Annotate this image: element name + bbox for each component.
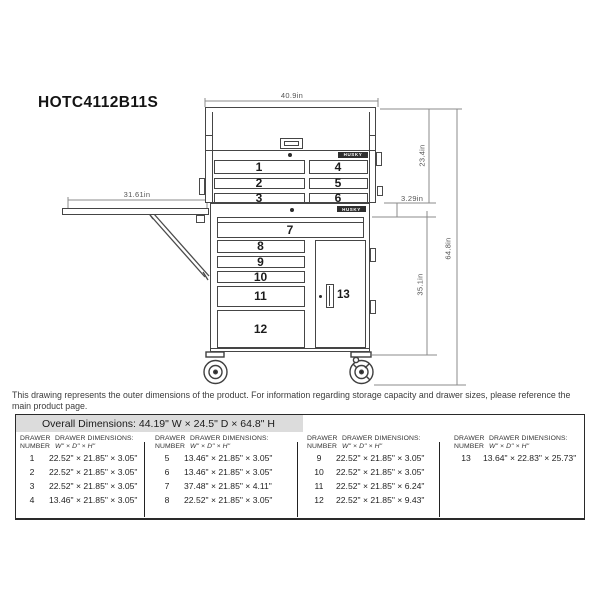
left-caster xyxy=(204,352,227,384)
drawer-number: 5 xyxy=(155,453,179,463)
chest-right-inner-panel xyxy=(369,112,370,202)
group-1-header: DRAWERNUMBER DRAWER DIMENSIONS:W" × D" ×… xyxy=(20,435,146,451)
header-number: NUMBER xyxy=(307,443,337,450)
header-dimensions: DRAWER DIMENSIONS: xyxy=(342,435,421,442)
overall-dimensions-text: Overall Dimensions: 44.19" W × 24.5" D ×… xyxy=(16,418,275,430)
drawer-dims: 13.46" × 21.85" × 3.05" xyxy=(49,495,137,505)
shelf-mount-bracket xyxy=(196,215,205,223)
chest-right-side-seam xyxy=(369,135,376,136)
drawer-5: 5 xyxy=(309,178,368,190)
table-row: 1222.52" × 21.85" × 9.43" xyxy=(307,494,441,507)
drawer-5-label: 5 xyxy=(335,176,342,190)
table-row: 737.48" × 21.85" × 4.11" xyxy=(155,480,299,493)
drawer-number: 3 xyxy=(20,481,44,491)
dim-chest-height: 23.4in xyxy=(418,136,427,176)
drawer-number: 9 xyxy=(307,453,331,463)
drawer-number: 6 xyxy=(155,467,179,477)
door-handle xyxy=(326,284,334,308)
drawer-7-trim-line xyxy=(218,222,363,223)
drawer-group-4: DRAWERNUMBER DRAWER DIMENSIONS:W" × D" ×… xyxy=(441,435,584,519)
cabinet-right-handle-lower xyxy=(370,300,376,314)
header-number: NUMBER xyxy=(155,443,185,450)
drawer-number: 2 xyxy=(20,467,44,477)
table-row: 1313.64" × 22.83" × 25.73" xyxy=(454,452,584,465)
cabinet-lock-icon xyxy=(290,208,294,212)
overall-dimensions-label: Overall Dimensions: xyxy=(42,418,136,430)
table-row: 222.52" × 21.85" × 3.05" xyxy=(20,466,146,479)
drawer-dimension-groups: DRAWERNUMBER DRAWER DIMENSIONS:W" × D" ×… xyxy=(16,432,584,519)
chest-left-handle xyxy=(199,178,205,195)
drawer-11: 11 xyxy=(217,286,305,307)
door-lock-icon xyxy=(319,295,323,299)
dim-gap-height: 3.29in xyxy=(401,194,423,203)
lid-handle-plate-inner xyxy=(284,141,299,146)
header-dimensions: DRAWER DIMENSIONS: xyxy=(55,435,134,442)
group-separator-3 xyxy=(439,442,440,517)
drawer-8-label: 8 xyxy=(257,239,264,253)
drawer-10-label: 10 xyxy=(254,270,267,284)
drawer-group-2: DRAWERNUMBER DRAWER DIMENSIONS:W" × D" ×… xyxy=(146,435,299,519)
drawer-6: 6 xyxy=(309,193,368,204)
drawer-4: 4 xyxy=(309,160,368,174)
drawer-12: 12 xyxy=(217,310,305,349)
header-drawer: DRAWER xyxy=(307,435,338,442)
table-row: 613.46" × 21.85" × 3.05" xyxy=(155,466,299,479)
door-13-label: 13 xyxy=(337,289,350,301)
group-separator-2 xyxy=(297,442,298,517)
table-row: 922.52" × 21.85" × 3.05" xyxy=(307,452,441,465)
drawer-2-label: 2 xyxy=(256,176,263,190)
table-row: 513.46" × 21.85" × 3.05" xyxy=(155,452,299,465)
header-drawer: DRAWER xyxy=(155,435,186,442)
table-row: 822.52" × 21.85" × 3.05" xyxy=(155,494,299,507)
drawer-dims: 22.52" × 21.85" × 3.05" xyxy=(49,453,137,463)
header-wdh: W" × D" × H" xyxy=(55,443,95,450)
drawer-1-label: 1 xyxy=(256,160,263,174)
group-4-header: DRAWERNUMBER DRAWER DIMENSIONS:W" × D" ×… xyxy=(454,435,584,451)
chest-lock-icon xyxy=(288,153,292,157)
drawer-4-label: 4 xyxy=(335,160,342,174)
dim-cabinet-height: 35.1in xyxy=(416,265,425,305)
drawer-number: 8 xyxy=(155,495,179,505)
drawer-group-1: DRAWERNUMBER DRAWER DIMENSIONS:W" × D" ×… xyxy=(16,435,146,519)
header-drawer: DRAWER xyxy=(20,435,51,442)
drawer-dims: 22.52" × 21.85" × 3.05" xyxy=(336,467,424,477)
header-drawer: DRAWER xyxy=(454,435,485,442)
drawer-number: 10 xyxy=(307,467,331,477)
table-row: 1022.52" × 21.85" × 3.05" xyxy=(307,466,441,479)
drawer-dims: 13.46" × 21.85" × 3.05" xyxy=(184,467,272,477)
header-number: NUMBER xyxy=(20,443,50,450)
drawer-number: 13 xyxy=(454,453,478,463)
drawer-dims: 22.52" × 21.85" × 9.43" xyxy=(336,495,424,505)
drawer-1: 1 xyxy=(214,160,305,174)
disclaimer-text: This drawing represents the outer dimens… xyxy=(12,390,590,412)
drawer-12-label: 12 xyxy=(254,322,267,336)
dim-shelf-width: 31.61in xyxy=(104,190,170,199)
drawer-dims: 22.52" × 21.85" × 3.05" xyxy=(336,453,424,463)
drawer-9-label: 9 xyxy=(257,255,264,269)
drawer-number: 12 xyxy=(307,495,331,505)
cabinet-brand-logo: HUSKY xyxy=(337,206,366,212)
chest-left-side-seam xyxy=(205,135,212,136)
header-wdh: W" × D" × H" xyxy=(342,443,382,450)
drawer-dims: 13.46" × 21.85" × 3.05" xyxy=(184,453,272,463)
drawer-dims: 22.52" × 21.85" × 3.05" xyxy=(49,481,137,491)
drawer-dims: 22.52" × 21.85" × 3.05" xyxy=(184,495,272,505)
drawer-dims: 22.52" × 21.85" × 3.05" xyxy=(49,467,137,477)
header-number: NUMBER xyxy=(454,443,484,450)
overall-dimensions-row: Overall Dimensions: 44.19" W × 24.5" D ×… xyxy=(16,415,584,432)
drawer-3: 3 xyxy=(214,193,305,204)
product-dimension-page: HOTC4112B11S xyxy=(0,0,600,600)
chest-right-clip xyxy=(377,186,383,196)
group-2-header: DRAWERNUMBER DRAWER DIMENSIONS:W" × D" ×… xyxy=(155,435,299,451)
chest-brand-logo: HUSKY xyxy=(338,152,368,158)
header-wdh: W" × D" × H" xyxy=(190,443,230,450)
overall-dimensions-value: 44.19" W × 24.5" D × 64.8" H xyxy=(139,418,275,430)
drawer-8: 8 xyxy=(217,240,305,253)
drawer-dims: 37.48" × 21.85" × 4.11" xyxy=(184,481,272,491)
drawer-2: 2 xyxy=(214,178,305,190)
cabinet-right-handle-upper xyxy=(370,248,376,262)
door-handle-inner-line xyxy=(329,286,330,306)
table-row: 1122.52" × 21.85" × 6.24" xyxy=(307,480,441,493)
drawer-11-label: 11 xyxy=(254,289,267,303)
drawer-10: 10 xyxy=(217,271,305,283)
drawer-9: 9 xyxy=(217,256,305,268)
drawer-number: 1 xyxy=(20,453,44,463)
header-dimensions: DRAWER DIMENSIONS: xyxy=(190,435,269,442)
drawer-number: 4 xyxy=(20,495,44,505)
group-separator-1 xyxy=(144,442,145,517)
header-wdh: W" × D" × H" xyxy=(489,443,529,450)
drawer-dims: 22.52" × 21.85" × 6.24" xyxy=(336,481,424,491)
dim-overall-height: 64.8in xyxy=(444,229,453,269)
drawer-7: 7 xyxy=(217,217,364,238)
table-row: 413.46" × 21.85" × 3.05" xyxy=(20,494,146,507)
cabinet-base-seam xyxy=(211,348,369,349)
spec-table: Overall Dimensions: 44.19" W × 24.5" D ×… xyxy=(15,414,585,520)
chest-right-handle xyxy=(376,152,382,166)
right-caster xyxy=(350,352,373,384)
table-row: 122.52" × 21.85" × 3.05" xyxy=(20,452,146,465)
drawer-number: 11 xyxy=(307,481,331,491)
drawer-dims: 13.64" × 22.83" × 25.73" xyxy=(483,453,576,463)
group-3-header: DRAWERNUMBER DRAWER DIMENSIONS:W" × D" ×… xyxy=(307,435,441,451)
drawer-number: 7 xyxy=(155,481,179,491)
dim-top-width: 40.9in xyxy=(260,91,324,100)
table-row: 322.52" × 21.85" × 3.05" xyxy=(20,480,146,493)
header-dimensions: DRAWER DIMENSIONS: xyxy=(489,435,568,442)
drawer-group-3: DRAWERNUMBER DRAWER DIMENSIONS:W" × D" ×… xyxy=(299,435,441,519)
side-shelf xyxy=(62,208,209,215)
drawer-7-label: 7 xyxy=(287,223,294,237)
